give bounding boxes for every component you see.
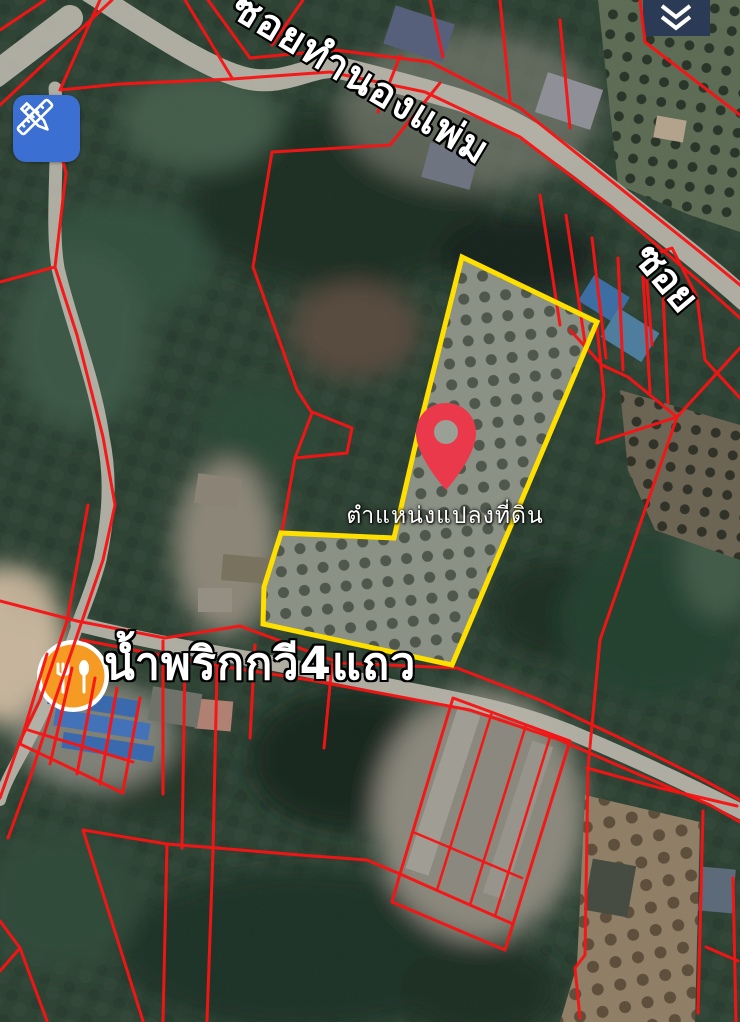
map-canvas[interactable]: ซอยทำนองแพ่ม ซอย ตำแหน่งแปลงที่ดิน น้ำพร… [0, 0, 740, 1022]
pin-caption: ตำแหน่งแปลงที่ดิน [330, 504, 560, 528]
pencil-ruler-icon [13, 95, 57, 139]
pin-hole [434, 420, 458, 444]
poi-label: น้ำพริกกวี4แถว [104, 640, 416, 687]
edit-button[interactable] [13, 95, 80, 162]
spoon-shape [79, 660, 89, 676]
chevron-roof-building [643, 0, 710, 36]
